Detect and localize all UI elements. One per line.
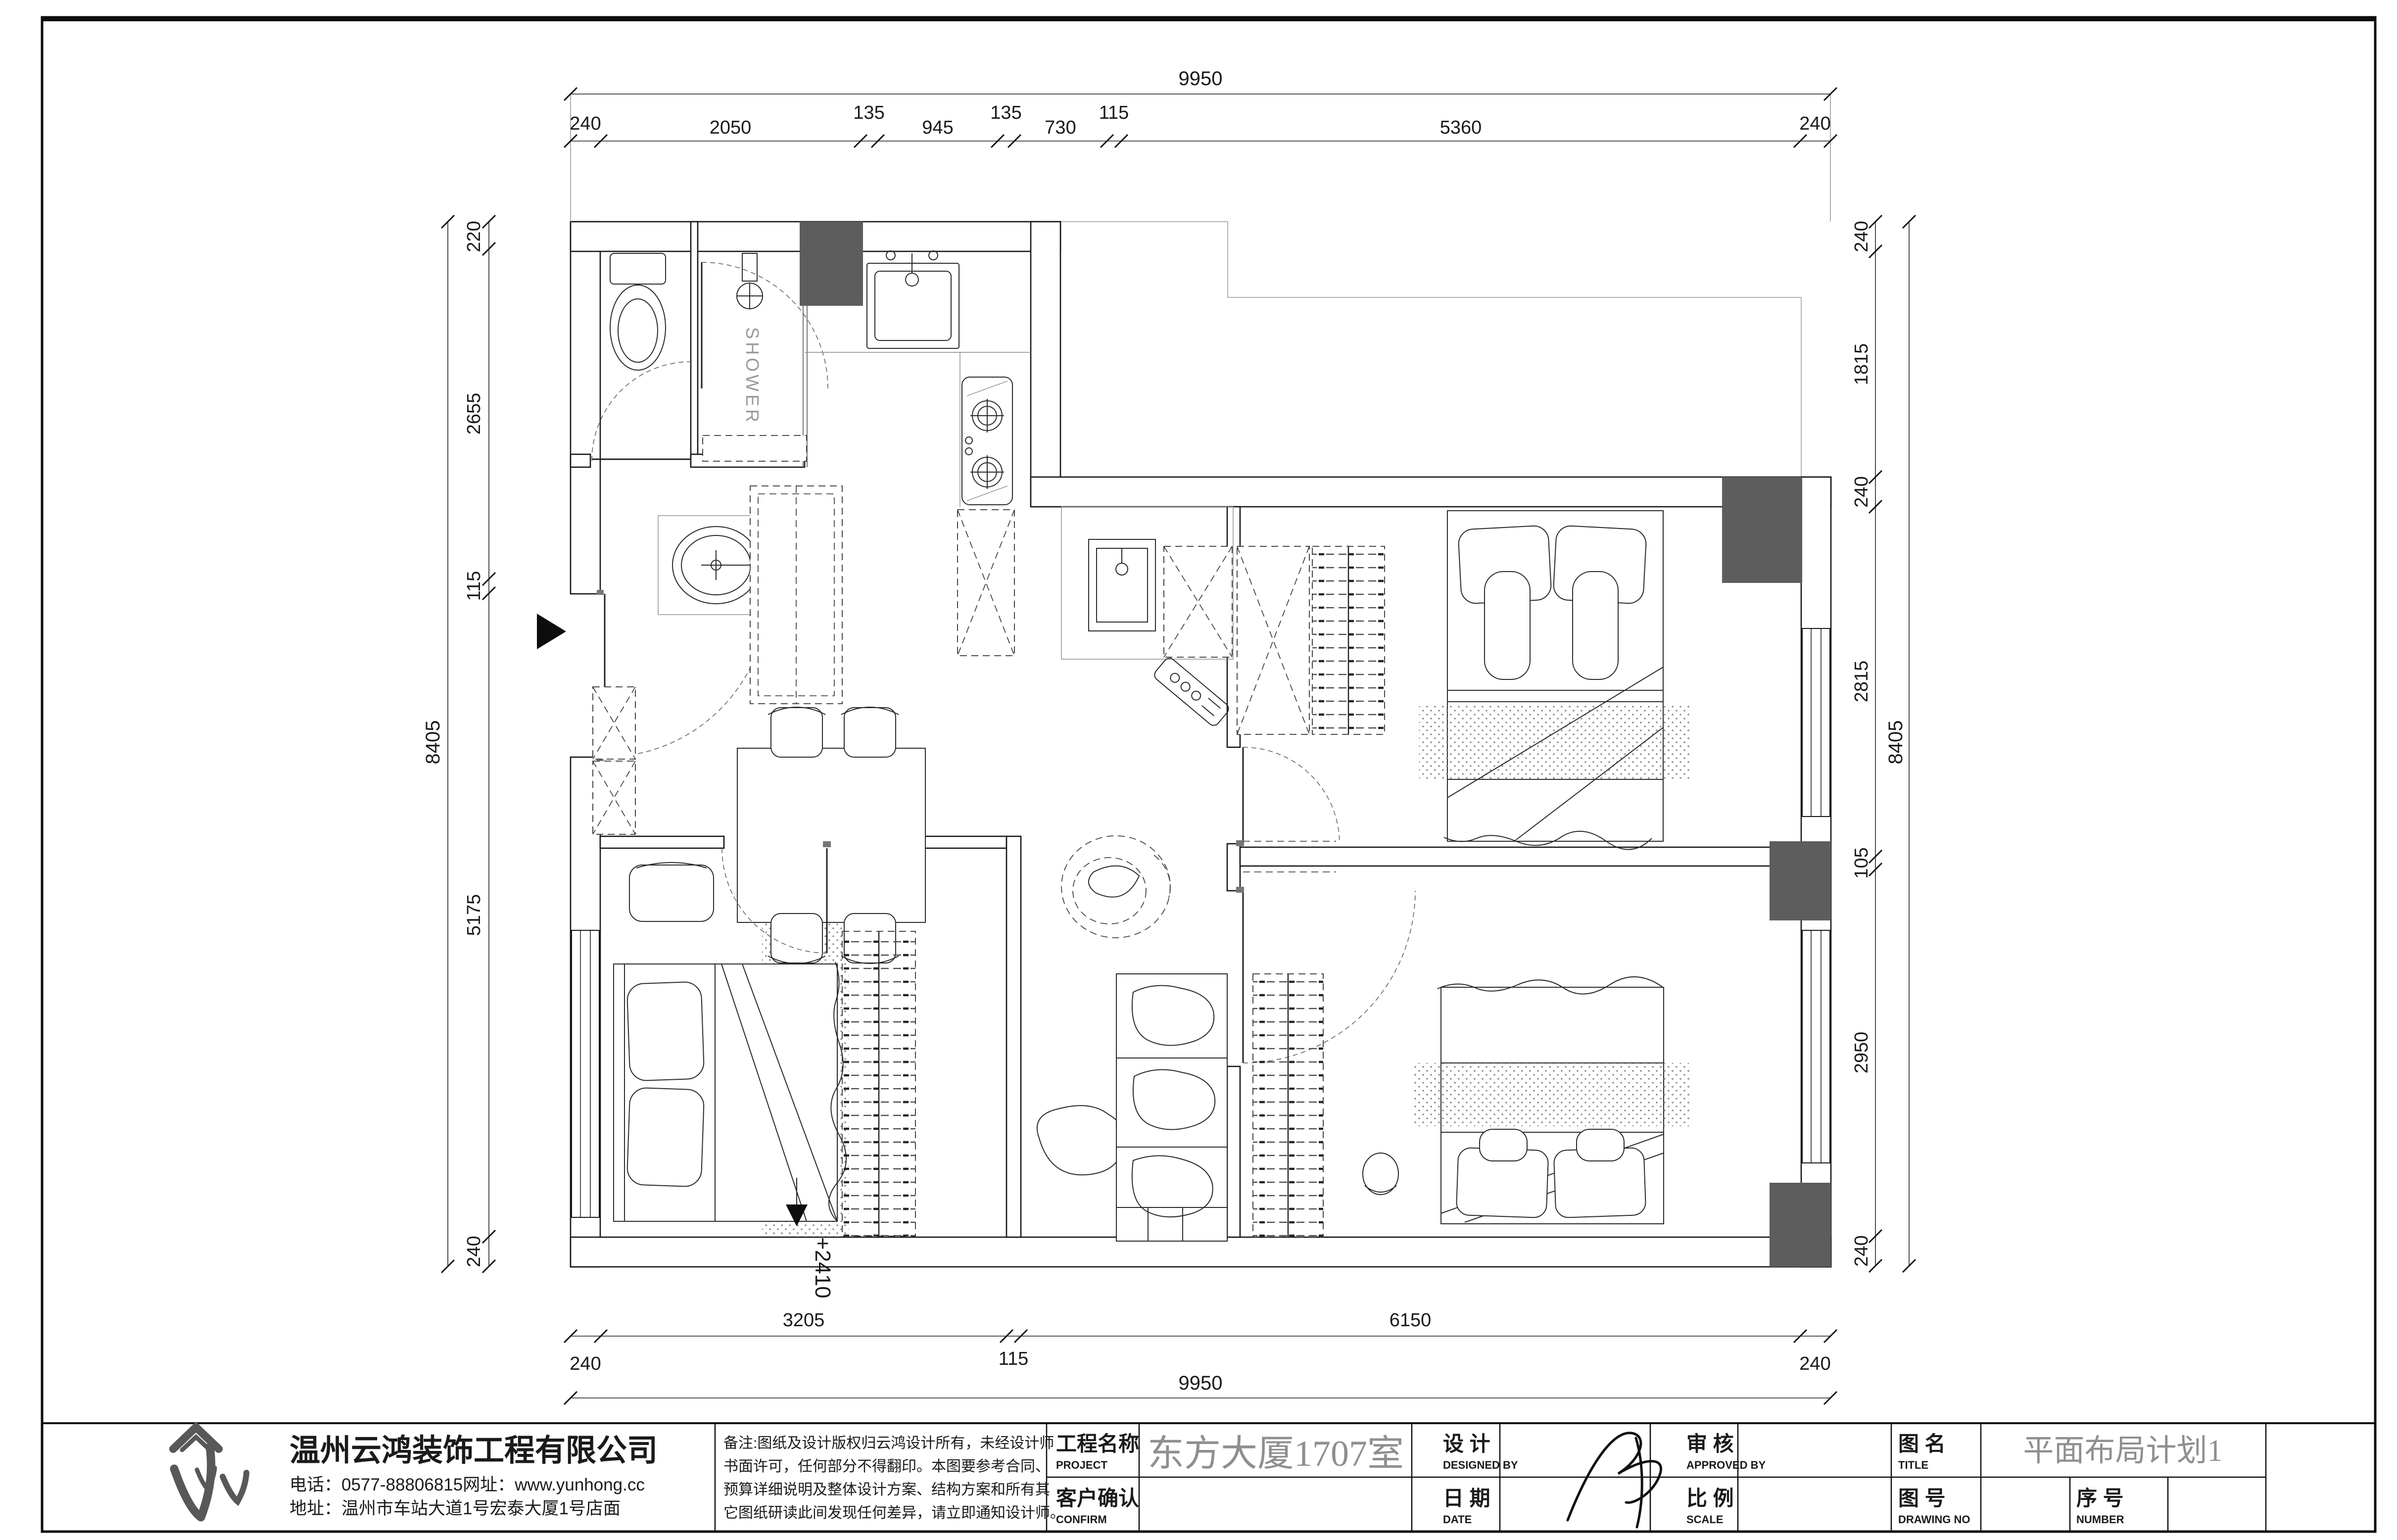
dim-top: 9950 240 2050 135 945 135 730 115 5360 2… (564, 68, 1837, 222)
bed-double-upper (1419, 511, 1691, 850)
svg-text:135: 135 (990, 102, 1021, 123)
toilet-room (592, 253, 691, 461)
svg-text:3205: 3205 (783, 1310, 825, 1331)
kitchen-sink (867, 251, 959, 348)
pillow (627, 1087, 705, 1187)
svg-text:240: 240 (570, 1353, 601, 1374)
svg-text:1815: 1815 (1851, 343, 1872, 385)
wardrobe-x (1237, 546, 1309, 734)
kitchen-counter-lower (958, 510, 1014, 656)
window-right-upper (1802, 628, 1830, 817)
drawing-no-label-en: DRAWING NO (1898, 1513, 1970, 1526)
dining-chair (841, 707, 899, 757)
svg-text:135: 135 (853, 102, 884, 123)
stool (1363, 1153, 1398, 1195)
title-label: 图 名 (1898, 1432, 1946, 1455)
pillow-bolster (1480, 1129, 1527, 1161)
wardrobe-hangers (1312, 546, 1385, 734)
window-left (572, 930, 599, 1217)
confirm-label-en: CONFIRM (1056, 1513, 1107, 1526)
wardrobe-hangers (1253, 974, 1323, 1237)
svg-text:5175: 5175 (464, 894, 484, 936)
designer-signature (1568, 1433, 1661, 1527)
project-label: 工程名称 (1056, 1432, 1139, 1455)
title-label-en: TITLE (1898, 1459, 1928, 1471)
bedspread-dots (1419, 705, 1691, 779)
floor-plan-sheet: SHOWER (0, 0, 2397, 1538)
confirm-label: 客户确认 (1056, 1487, 1139, 1510)
void-outline (1060, 222, 1801, 477)
pillow-bolster (1577, 1129, 1624, 1161)
svg-text:240: 240 (464, 1236, 484, 1267)
dim-right: 240 1815 240 2815 105 2950 240 8405 (1851, 215, 1916, 1272)
date-label: 日 期 (1443, 1487, 1490, 1510)
company-info: 温州云鸿装饰工程有限公司 电话：0577-88806815网址：www.yunh… (289, 1434, 658, 1518)
cabinet-x (1164, 546, 1232, 657)
gas-stove (962, 377, 1012, 505)
entry-door (537, 590, 768, 761)
date-label-en: DATE (1443, 1513, 1472, 1526)
dim-top-overall: 9950 (1179, 68, 1223, 90)
bedspread-dots (1414, 1063, 1690, 1126)
floor-level-label: +2410 (811, 1237, 835, 1299)
pillow-bolster (1485, 572, 1530, 679)
svg-text:240: 240 (1851, 1235, 1872, 1266)
approved-label: 审 核 (1686, 1432, 1734, 1455)
svg-text:5360: 5360 (1440, 117, 1482, 138)
svg-text:115: 115 (1099, 102, 1129, 123)
bed-left (614, 962, 846, 1221)
company-name: 温州云鸿装饰工程有限公司 (289, 1434, 658, 1468)
company-phone: 电话：0577-88806815网址：www.yunhong.cc (289, 1475, 645, 1494)
bed-double-lower (1414, 977, 1690, 1224)
company-logo (173, 1427, 246, 1517)
svg-text:240: 240 (570, 113, 601, 134)
svg-text:240: 240 (1799, 1353, 1830, 1374)
approved-label-en: APPROVED BY (1686, 1459, 1766, 1471)
title-value: 平面布局计划1 (2023, 1434, 2222, 1468)
project-label-en: PROJECT (1056, 1459, 1107, 1471)
window-right-lower (1802, 930, 1830, 1163)
dim-bottom: 3205 6150 240 115 240 9950 (564, 1310, 1837, 1404)
svg-text:2950: 2950 (1851, 1032, 1872, 1074)
bedroom-upper-right (1061, 507, 1691, 850)
note-line: 预算详细说明及整体设计方案、结构方案和所有其 (723, 1482, 1050, 1498)
svg-text:240: 240 (1851, 221, 1872, 252)
desk-chair (629, 863, 714, 921)
project-value: 东方大厦1707室 (1148, 1434, 1404, 1474)
svg-text:730: 730 (1045, 117, 1076, 138)
svg-text:220: 220 (464, 221, 484, 252)
number-label-en: NUMBER (2076, 1513, 2124, 1526)
pillow-bolster (1573, 572, 1618, 679)
svg-text:105: 105 (1851, 847, 1872, 878)
svg-text:2815: 2815 (1851, 661, 1872, 703)
svg-text:6150: 6150 (1390, 1310, 1432, 1331)
svg-text:945: 945 (922, 117, 953, 138)
designed-label-en: DESIGNED BY (1443, 1459, 1518, 1471)
floor-decor-swirl (1061, 836, 1170, 938)
svg-text:2050: 2050 (710, 117, 752, 138)
shower-label: SHOWER (742, 327, 763, 425)
svg-text:240: 240 (1851, 476, 1872, 507)
scale-label-en: SCALE (1686, 1513, 1724, 1526)
dim-bottom-overall: 9950 (1179, 1372, 1223, 1394)
dim-left-overall: 8405 (422, 721, 444, 765)
wardrobe-hangers (842, 931, 915, 1236)
dim-right-overall: 8405 (1885, 721, 1907, 765)
svg-text:115: 115 (464, 571, 484, 601)
bedroom-lower-right (1116, 974, 1690, 1241)
designed-label: 设 计 (1443, 1432, 1490, 1455)
laundry-sink (1089, 539, 1155, 631)
entry-arrow-icon (537, 614, 566, 649)
company-address: 地址：温州市车站大道1号宏泰大厦1号店面 (289, 1499, 621, 1518)
dining-chair (768, 914, 825, 963)
notes: 备注:图纸及设计版权归云鸿设计所有，未经设计师 书面许可，任何部分不得翻印。本图… (723, 1435, 1065, 1521)
dining-table (737, 748, 925, 922)
note-line: 书面许可，任何部分不得翻印。本图要参考合同、 (723, 1458, 1050, 1475)
drawing-no-label: 图 号 (1898, 1487, 1946, 1510)
note-line: 备注:图纸及设计版权归云鸿设计所有，未经设计师 (723, 1435, 1054, 1451)
cabinet-tall (750, 486, 842, 704)
number-label: 序 号 (2076, 1487, 2124, 1510)
svg-text:240: 240 (1799, 113, 1830, 134)
rug (1037, 1106, 1125, 1175)
dim-left: 8405 220 2655 115 5175 240 (422, 215, 495, 1273)
title-block: 温州云鸿装饰工程有限公司 电话：0577-88806815网址：www.yunh… (42, 1423, 2375, 1532)
svg-text:115: 115 (999, 1348, 1029, 1369)
dining-chair (768, 707, 825, 757)
pillow (627, 981, 705, 1081)
clothes-shelf (1116, 974, 1227, 1241)
floor-plan: SHOWER (537, 222, 1831, 1299)
shoe-item (1152, 656, 1231, 727)
sheet-border (42, 17, 2375, 1532)
scale-label: 比 例 (1686, 1487, 1734, 1510)
note-line: 它图纸研读此间发现任何差异，请立即通知设计师。 (723, 1505, 1065, 1521)
svg-text:2655: 2655 (464, 393, 484, 435)
